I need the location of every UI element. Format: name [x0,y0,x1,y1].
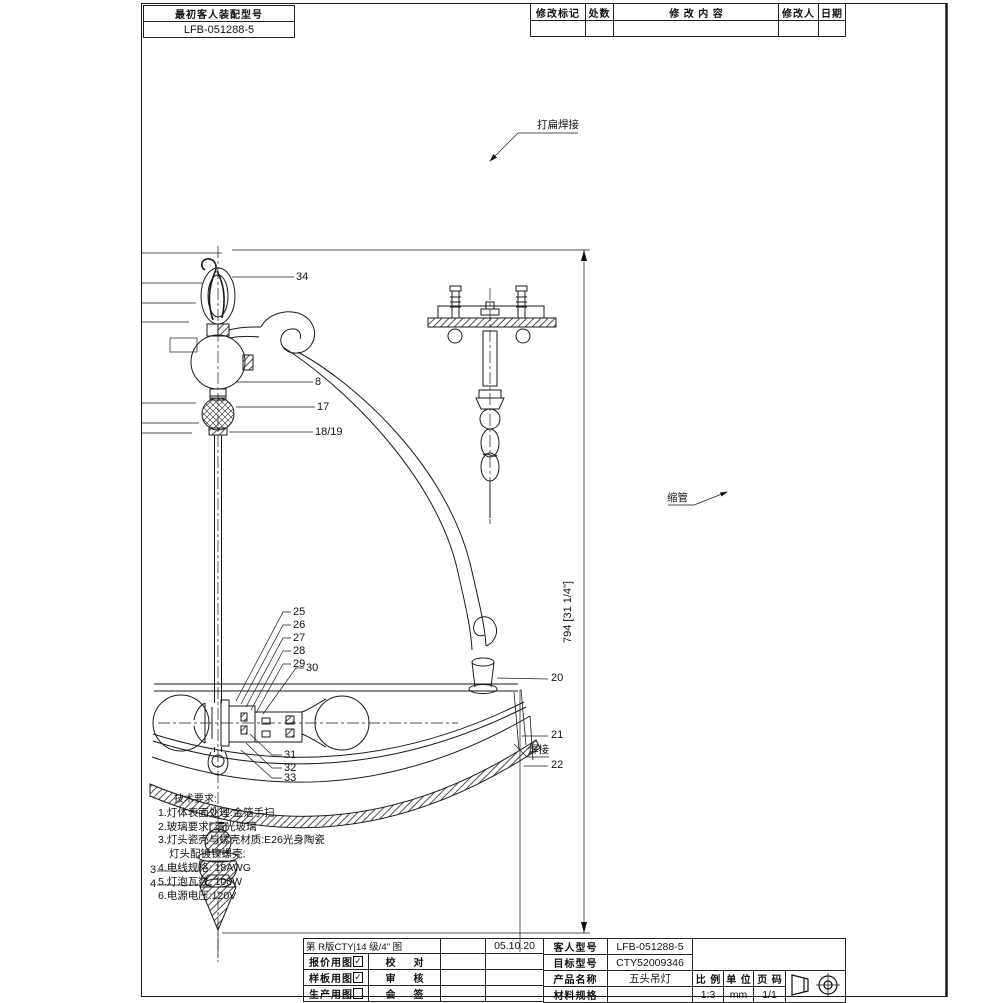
empty-cell [441,986,486,1002]
part-label-25: 25 [293,606,305,618]
review-label: 审核 [369,970,441,986]
empty-cell [693,939,846,971]
revision-empty-cell [614,21,779,37]
drawing-revision-note: 第 R版CTY|14 级/4" 图 [304,939,441,954]
tech-note-line: 2.玻璃要求: 清光玻璃 [158,821,393,835]
product-name-value: 五头吊灯 [608,971,693,987]
empty-cell [441,939,486,954]
revision-empty-cell [531,21,586,37]
material-spec-label: 材料规格 [544,987,608,1003]
ceiling-mount-detail [428,286,556,518]
part-label-28: 28 [293,645,305,657]
part-label-3: 3 [150,864,156,876]
model-box-value: LFB-051288-5 [144,22,295,38]
part-label-8: 8 [315,376,321,388]
part-label-34: 34 [296,271,308,283]
customer-model-label: 客人型号 [544,939,608,955]
drawing-canvas [0,0,1000,1000]
original-customer-model-box: 最初客人装配型号 LFB-051288-5 [143,5,295,38]
customer-model-value: LFB-051288-5 [608,939,693,955]
production-drawing-row: 生产用图 [304,986,369,1002]
part-label-21: 21 [551,729,563,741]
scale-value: 1:3 [693,987,724,1003]
tech-notes-title: 技术要求: [158,793,393,807]
third-angle-projection-icon [786,971,846,1003]
product-name-label: 产品名称 [544,971,608,987]
part-label-30: 30 [306,662,318,674]
tech-note-line: 5.灯泡瓦数: 100W [158,876,393,890]
revision-qty-header: 处数 [586,4,614,21]
part-label-17: 17 [317,401,329,413]
sample-drawing-checkbox: ✓ [353,972,363,983]
revision-empty-cell [779,21,819,37]
drawing-date: 05.10.20 [486,939,544,954]
empty-cell [486,954,544,970]
technical-notes: 技术要求: 1.灯体表面处理:金箔手扫 2.玻璃要求: 清光玻璃 3.灯头瓷壳与… [158,793,393,903]
empty-cell [441,970,486,986]
part-label-33: 33 [284,772,296,784]
tech-note-line: 灯头配镀镍螺壳; [158,848,393,862]
scroll-arm [229,312,497,694]
part-label-29: 29 [293,658,305,670]
tech-note-line: 1.灯体表面处理:金箔手扫 [158,807,393,821]
title-block-left: 第 R版CTY|14 级/4" 图 05.10.20 报价用图✓ 校对 样板用图… [303,938,544,1002]
production-drawing-checkbox [353,988,363,999]
page-value: 1/1 [754,987,786,1003]
part-label-26: 26 [293,619,305,631]
part-label-22: 22 [551,759,563,771]
quote-drawing-row: 报价用图✓ [304,954,369,970]
socket-assembly [153,684,518,775]
callout-leaders [157,133,728,885]
engineering-drawing-sheet: { "header": { "model_box": { "title": "最… [0,0,1000,1000]
empty-cell [441,954,486,970]
page-label: 页码 [754,971,786,987]
empty-cell [486,986,544,1002]
model-box-title: 最初客人装配型号 [144,6,295,22]
revision-empty-cell [819,21,846,37]
shrink-tube-callout: 缩管 [667,492,688,504]
tech-note-line: 4.电线规格: 18AWG [158,862,393,876]
countersign-label: 会签 [369,986,441,1002]
revision-date-header: 日期 [819,4,846,21]
part-label-27: 27 [293,632,305,644]
unit-value: mm [724,987,754,1003]
sample-drawing-row: 样板用图✓ [304,970,369,986]
revision-person-header: 修改人 [779,4,819,21]
tech-note-line: 3.灯头瓷壳与螺壳材质:E26光身陶瓷 [158,834,393,848]
target-model-value: CTY52009346 [608,955,693,971]
part-label-4: 4 [150,878,156,890]
tech-note-line: 6.电源电压:120V [158,890,393,904]
overall-height-dimension: 794 [31 1/4"] [562,547,574,677]
check-label: 校对 [369,954,441,970]
chandelier-column [191,324,253,703]
target-model-label: 目标型号 [544,955,608,971]
revision-content-header: 修改内容 [614,4,779,21]
part-label-31: 31 [284,749,296,761]
part-label-20: 20 [551,672,563,684]
revision-mark-header: 修改标记 [531,4,586,21]
material-spec-value [608,987,693,1003]
part-label-18-19: 18/19 [315,426,343,438]
scale-label: 比例 [693,971,724,987]
revision-table: 修改标记 处数 修改内容 修改人 日期 [530,3,846,37]
flatten-weld-callout: 打扁焊接 [537,119,579,131]
weld-callout: 焊接 [528,744,549,756]
revision-empty-cell [586,21,614,37]
unit-label: 单位 [724,971,754,987]
empty-cell [486,970,544,986]
quote-drawing-checkbox: ✓ [353,956,363,967]
title-block-right: 客人型号 LFB-051288-5 目标型号 CTY52009346 产品名称 … [543,938,846,1003]
